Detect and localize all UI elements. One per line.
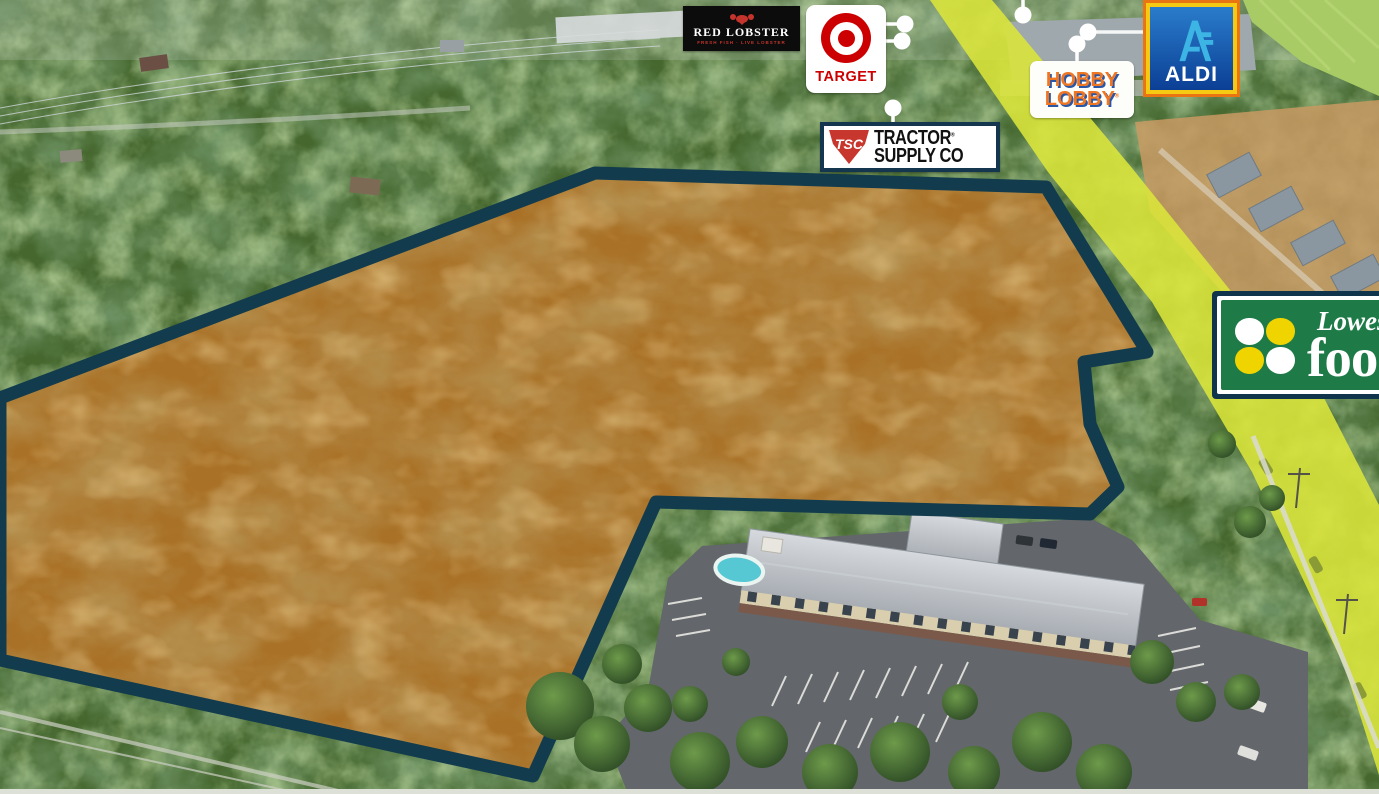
lobster-icon	[727, 13, 757, 25]
photo-bottom-edge	[0, 789, 1379, 794]
red-lobster-badge: RED LOBSTER FRESH FISH · LIVE LOBSTER	[683, 6, 800, 51]
lowes-foods-apples-icon	[1234, 317, 1298, 375]
target-bullseye-icon	[821, 13, 871, 63]
aldi-badge: ALDI	[1143, 0, 1240, 97]
tractor-supply-badge: TSC TRACTOR® SUPPLY CO	[820, 122, 1000, 172]
hobby-lobby-line2-text: LOBBY	[1045, 88, 1115, 110]
tractor-supply-wordmark: TRACTOR® SUPPLY CO	[874, 129, 963, 166]
target-badge: TARGET	[806, 5, 886, 93]
tsc-reg-mark: ®	[951, 132, 954, 138]
hobby-lobby-reg-mark: ®	[1115, 93, 1119, 99]
tsc-shield-icon: TSC	[828, 129, 870, 165]
hobby-lobby-badge: HOBBY LOBBY®	[1030, 61, 1134, 118]
red-lobster-tagline: FRESH FISH · LIVE LOBSTER	[697, 40, 786, 45]
aerial-photo	[0, 0, 1379, 794]
aldi-a-icon	[1166, 18, 1218, 62]
hobby-lobby-line2: LOBBY®	[1045, 90, 1119, 109]
target-wordmark: TARGET	[815, 69, 877, 85]
tsc-line2: SUPPLY CO	[874, 145, 963, 167]
lowes-foods-badge: Lowes foods	[1212, 291, 1379, 399]
aldi-wordmark: ALDI	[1165, 64, 1218, 85]
aerial-site-map: RED LOBSTER FRESH FISH · LIVE LOBSTER TA…	[0, 0, 1379, 794]
red-lobster-wordmark: RED LOBSTER	[693, 26, 789, 38]
tsc-shield-text: TSC	[828, 136, 870, 152]
lowes-foods-line2: foods	[1307, 326, 1379, 389]
